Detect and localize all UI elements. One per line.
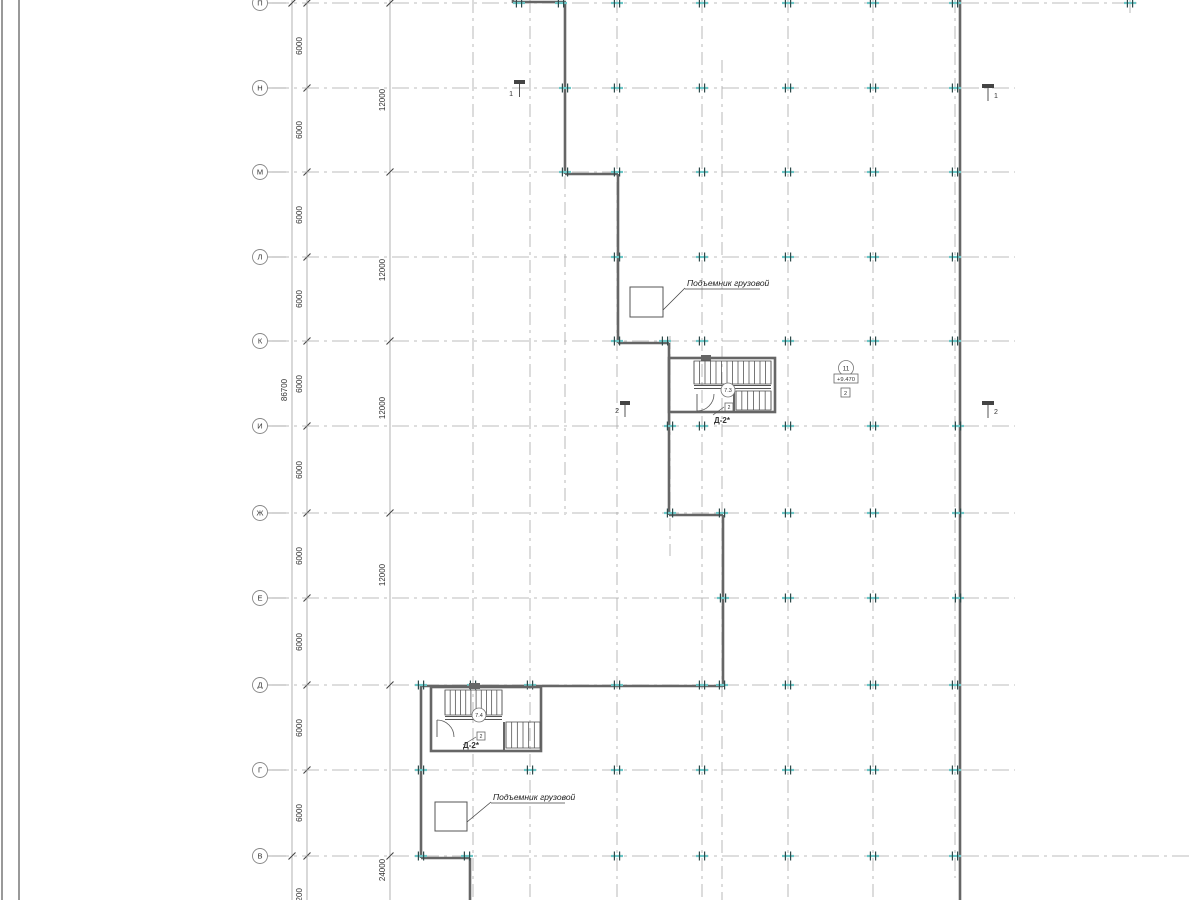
dimension-text: 12000 — [378, 258, 387, 281]
node-square-number: 2 — [728, 405, 731, 411]
axis-bubble-label: Д — [257, 681, 262, 690]
section-flag-bar — [620, 401, 630, 405]
floor-plan-canvas: 8670060006000600060006000600060006000600… — [0, 0, 1200, 900]
door-swing-arc — [697, 394, 714, 411]
axis-bubble-label: Ж — [257, 509, 264, 518]
dimension-chains: 8670060006000600060006000600060006000600… — [280, 0, 394, 900]
dimension-text: 12000 — [378, 88, 387, 111]
sheet-frame — [2, 0, 19, 900]
freight-lift-upper: Подъемник грузовой — [630, 278, 770, 317]
section-number: 2 — [615, 408, 619, 415]
annotation-leader — [663, 288, 685, 310]
freight-lift-box — [435, 802, 467, 831]
freight-lift-annotation: Подъемник грузовой — [493, 792, 576, 802]
section-number: 1 — [994, 93, 998, 100]
dimension-text: 6000 — [295, 719, 304, 737]
freight-lift-annotation: Подъемник грузовой — [687, 278, 770, 288]
section-1-right: 1 — [982, 84, 998, 101]
door-mark-label: Д-2* — [714, 416, 731, 425]
axis-bubble-label: Г — [258, 766, 262, 775]
section-flag-bar — [982, 84, 994, 88]
axis-bubble-label: М — [257, 168, 263, 177]
door-mark-label: Д-2* — [463, 741, 480, 750]
dimension-text: 6000 — [295, 37, 304, 55]
grid-rows: ПНМЛКИЖЕДГВ — [253, 0, 1191, 864]
stair-lower: 7.42Д-2* — [431, 683, 541, 751]
section-number: 1 — [509, 91, 513, 98]
section-flag-bar — [514, 80, 525, 84]
section-1-left: 1 — [509, 80, 525, 98]
axis-bubble-label: Е — [257, 594, 262, 603]
axis-bubble-label: П — [257, 0, 262, 8]
dimension-text: 6000 — [295, 461, 304, 479]
dimension-text: 86700 — [280, 378, 289, 401]
section-2-right: 2 — [982, 401, 998, 418]
section-flags: 1122 — [509, 80, 998, 418]
axis-bubble-label: Н — [257, 84, 262, 93]
room-number: 7.3 — [724, 388, 732, 394]
dimension-text: 6000 — [295, 121, 304, 139]
dimension-text: 6000 — [295, 206, 304, 224]
freight-lift-lower: Подъемник грузовой — [435, 792, 576, 831]
dimension-text: 12000 — [378, 396, 387, 419]
dimension-text: 6000 — [295, 633, 304, 651]
section-2-left: 2 — [615, 401, 630, 417]
annotation-leader — [467, 802, 491, 822]
dimension-text: 6000 — [295, 375, 304, 393]
dimension-text: 12000 — [378, 563, 387, 586]
axis-bubble-label: К — [258, 337, 263, 346]
elevation-value: +9.470 — [837, 377, 855, 383]
freight-lift-box — [630, 287, 663, 317]
section-number: 2 — [994, 409, 998, 416]
node-number: 11 — [843, 365, 850, 372]
room-number: 7.4 — [475, 713, 483, 719]
grid-columns — [473, 0, 1130, 900]
wall-column-block — [469, 683, 480, 689]
node-square-number: 2 — [844, 391, 847, 397]
axis-bubble-label: В — [257, 852, 262, 861]
dimension-text: 6000 — [295, 290, 304, 308]
walls — [421, 0, 960, 900]
drawing-sheet: 8670060006000600060006000600060006000600… — [0, 0, 1200, 900]
stairwell-walls — [431, 687, 541, 751]
axis-bubble-label: И — [257, 422, 262, 431]
dimension-text: 24000 — [378, 858, 387, 881]
axis-bubble-label: Л — [258, 253, 263, 262]
level-marker: 11+9.4702 — [834, 361, 858, 398]
node-square-number: 2 — [480, 734, 483, 740]
door-swing-arc — [437, 720, 454, 737]
section-flag-bar — [982, 401, 994, 405]
wall-column-block — [701, 355, 711, 361]
dimension-text: 7200 — [295, 888, 304, 900]
dimension-text: 6000 — [295, 547, 304, 565]
dimension-text: 6000 — [295, 804, 304, 822]
